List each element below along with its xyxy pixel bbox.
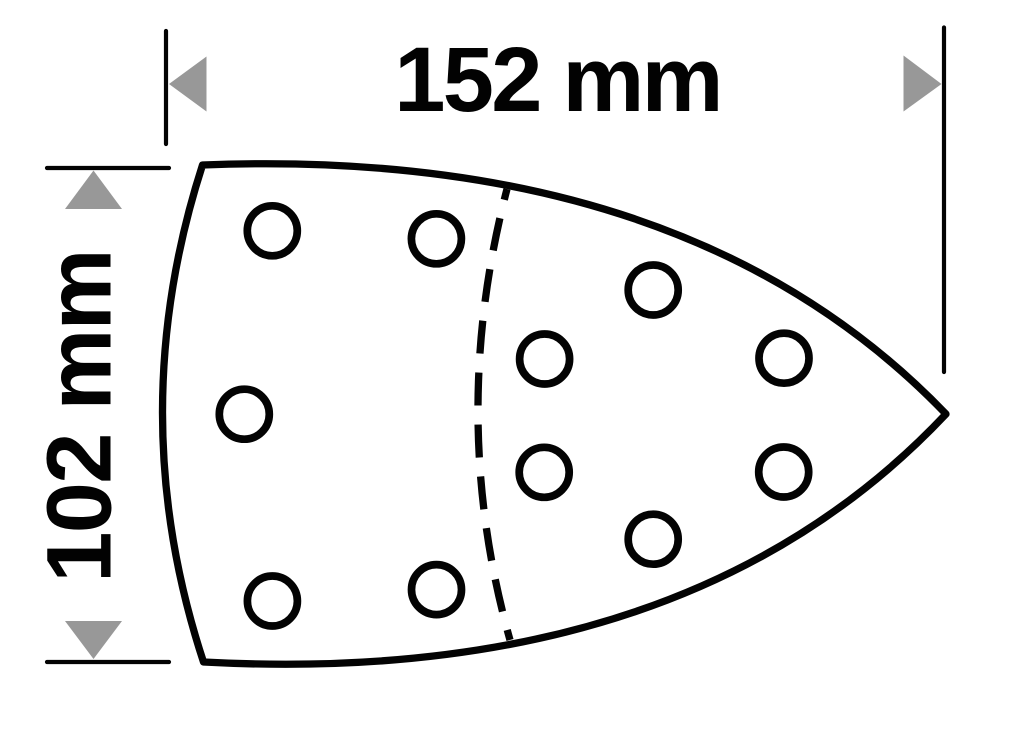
svg-text:102 mm: 102 mm xyxy=(29,250,131,582)
svg-text:152 mm: 152 mm xyxy=(394,29,720,131)
